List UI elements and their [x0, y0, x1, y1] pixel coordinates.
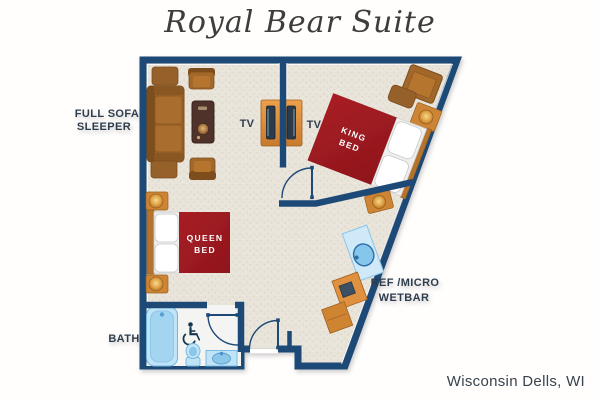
armchair-top — [188, 68, 215, 89]
bathtub — [147, 307, 178, 366]
tv-right — [287, 106, 296, 139]
lamp-icon — [149, 194, 163, 208]
armchair-bottom — [189, 158, 216, 180]
entry-door-opening — [250, 345, 278, 353]
toilet — [186, 344, 200, 367]
location-text: Wisconsin Dells, WI — [447, 373, 585, 390]
pillow — [155, 244, 178, 272]
label-sleeper: SLEEPER — [77, 121, 131, 133]
label-bath: BATH — [108, 333, 139, 345]
floor-plan-page: Royal Bear Suite — [0, 0, 600, 400]
floor-plan: QUEEN BED KING BED — [75, 60, 457, 366]
faucet-icon — [220, 352, 223, 355]
ottoman-top — [152, 67, 178, 85]
label-tv-left: TV — [240, 118, 255, 130]
label-wetbar: WETBAR — [379, 292, 430, 304]
faucet-icon — [160, 312, 164, 316]
queen-bed-label-2: BED — [194, 245, 216, 255]
tv-left — [267, 106, 276, 139]
queen-headboard — [147, 210, 154, 274]
queen-bed-label-1: QUEEN — [187, 233, 224, 243]
page-title: Royal Bear Suite — [163, 5, 435, 40]
ottoman-bottom — [151, 161, 177, 178]
fireplace-cabinet — [192, 101, 214, 143]
label-full-sofa: FULL SOFA — [75, 108, 140, 120]
pillow — [155, 214, 178, 242]
lamp-icon — [149, 277, 163, 291]
sofa — [147, 86, 184, 162]
floor-plan-svg: Royal Bear Suite — [0, 0, 600, 400]
bathroom-sink — [206, 351, 237, 367]
label-ref-micro: REF /MICRO — [371, 277, 440, 289]
label-tv-right: TV — [307, 119, 322, 131]
